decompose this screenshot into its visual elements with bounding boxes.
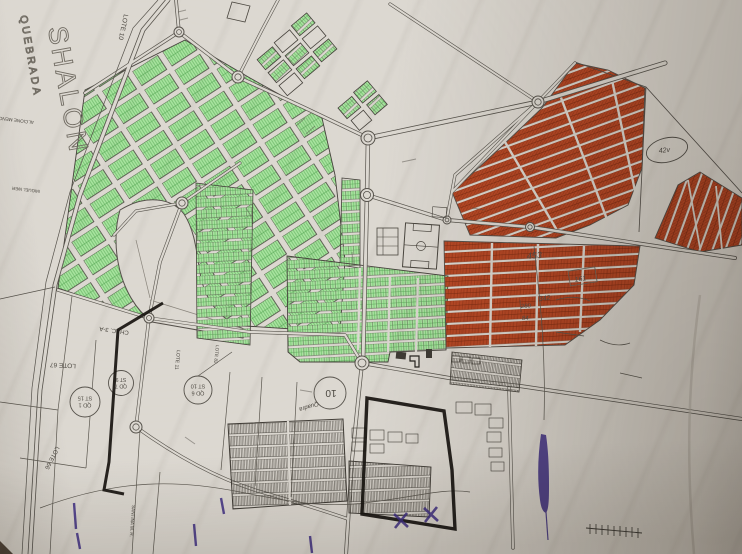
lote67-label: LOTE 67 xyxy=(49,361,76,369)
note-84: 84 xyxy=(522,316,530,322)
note-42v: 42v xyxy=(658,147,670,155)
quadra-number: 10 xyxy=(325,387,337,398)
note-342: 342 xyxy=(538,295,550,303)
photographed-plat-map: QD 1ST 15 QD 7ST 9 QD 6ST 10 10 Quadra S… xyxy=(0,0,742,554)
qd7-label: QD 7ST 9 xyxy=(115,376,127,389)
plat-map-drawing: QD 1ST 15 QD 7ST 9 QD 6ST 10 10 Quadra S… xyxy=(0,0,742,554)
qd1-label: QD 1ST 15 xyxy=(78,395,93,408)
note-453: 453 xyxy=(526,250,542,261)
note-280: 280 xyxy=(520,303,532,310)
qd6-label: QD 6ST 10 xyxy=(191,383,206,396)
